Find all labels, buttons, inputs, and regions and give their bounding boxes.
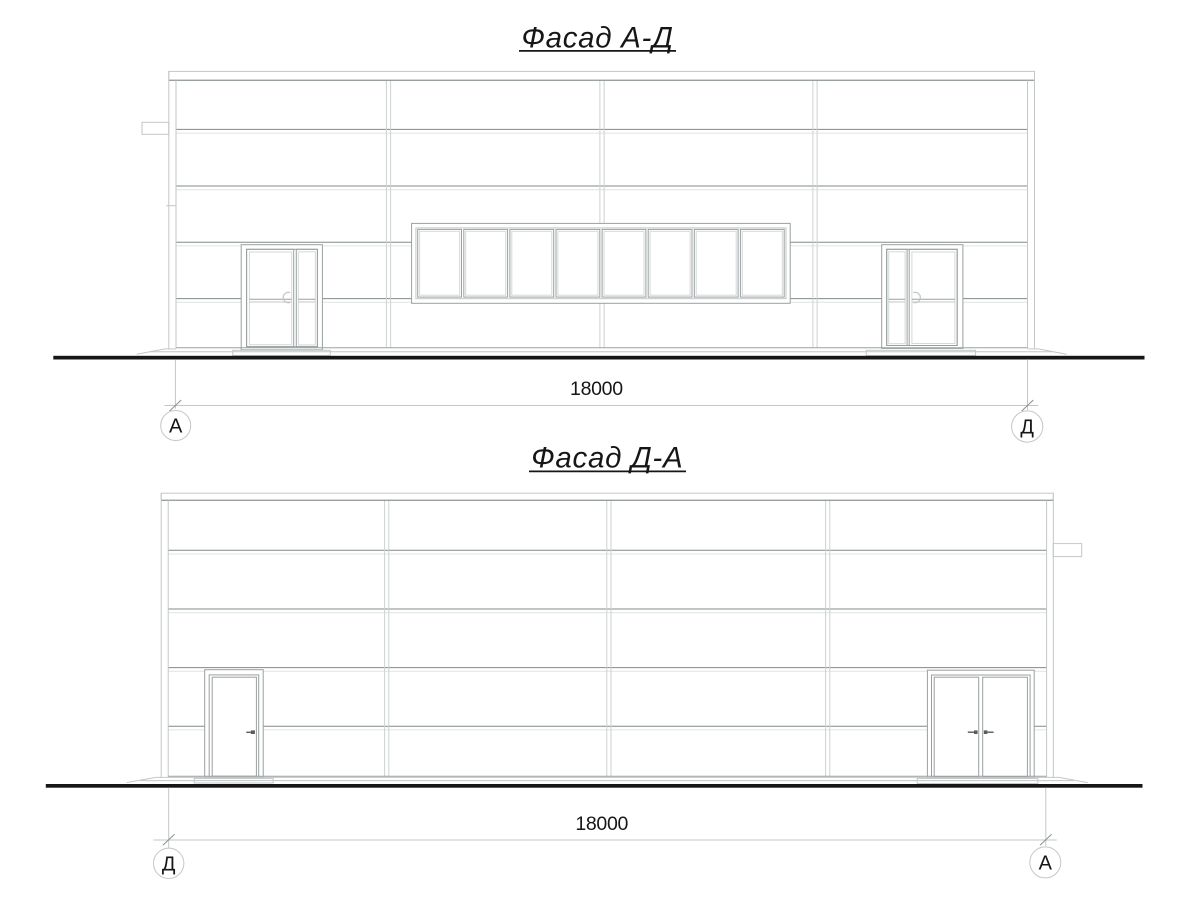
svg-text:А: А [1039,852,1053,874]
svg-text:Д: Д [1020,417,1034,439]
svg-text:18000: 18000 [570,378,623,400]
svg-text:Фасад Д-А: Фасад Д-А [531,442,683,475]
svg-text:Фасад А-Д: Фасад А-Д [521,22,673,55]
svg-text:Д: Д [162,853,176,875]
svg-text:18000: 18000 [575,813,628,835]
svg-text:А: А [169,416,183,438]
